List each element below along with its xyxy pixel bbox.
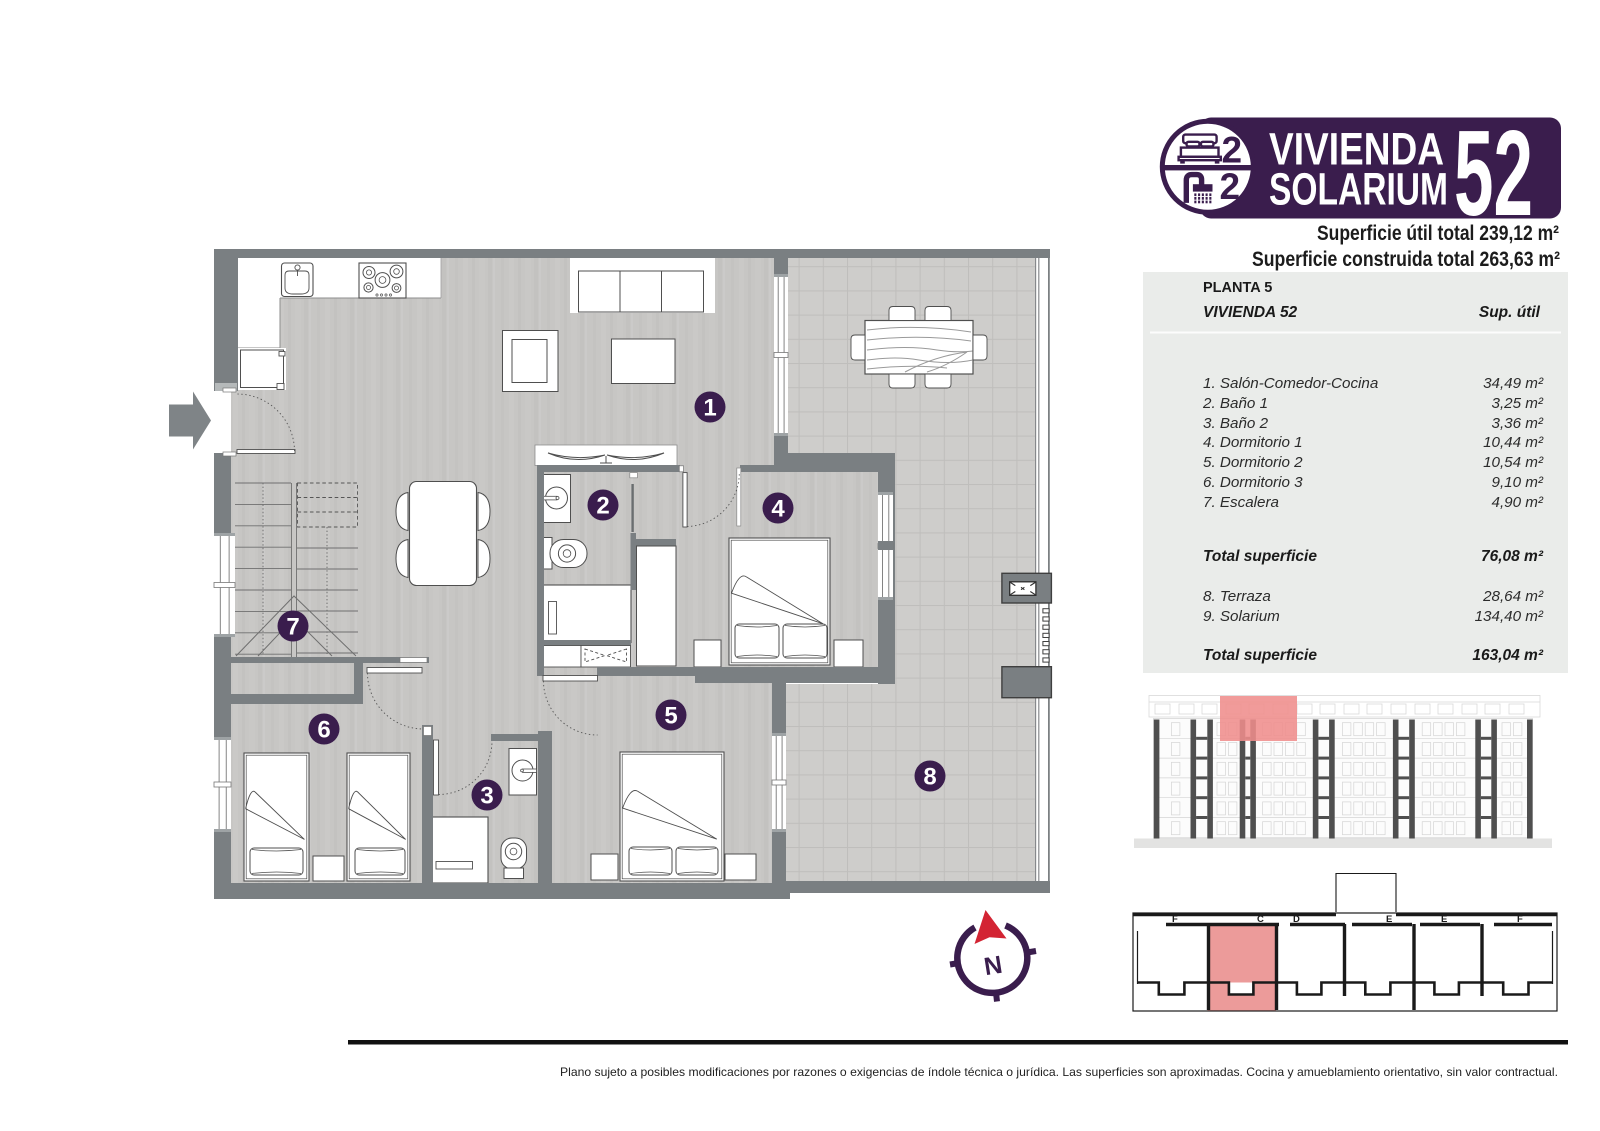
svg-text:9. Solarium: 9. Solarium [1203,608,1280,625]
svg-text:PLANTA 5: PLANTA 5 [1203,280,1272,296]
svg-text:Superficie útil total 239,12 m: Superficie útil total 239,12 m² [1317,222,1559,245]
svg-text:Plano sujeto a posibles modifi: Plano sujeto a posibles modificaciones p… [560,1065,1558,1079]
svg-text:3: 3 [480,783,493,810]
svg-text:SOLARIUM: SOLARIUM [1269,164,1448,215]
svg-text:3. Baño 2: 3. Baño 2 [1203,415,1269,432]
svg-text:Superficie construida total 26: Superficie construida total 263,63 m² [1252,248,1560,271]
svg-text:10,54 m²: 10,54 m² [1483,454,1544,471]
svg-text:4,90 m²: 4,90 m² [1492,494,1544,511]
svg-text:Total superficie: Total superficie [1203,647,1317,664]
svg-text:5: 5 [664,703,677,730]
svg-text:6: 6 [317,717,330,744]
svg-text:76,08 m²: 76,08 m² [1481,548,1544,565]
svg-text:4: 4 [771,496,785,523]
svg-text:N: N [982,951,1004,981]
svg-text:28,64 m²: 28,64 m² [1482,588,1544,605]
svg-text:3,36 m²: 3,36 m² [1492,415,1544,432]
svg-text:E: E [1441,914,1447,925]
svg-text:7: 7 [286,614,299,641]
svg-text:E: E [1386,914,1392,925]
svg-text:8. Terraza: 8. Terraza [1203,588,1271,605]
svg-text:VIVIENDA 52: VIVIENDA 52 [1203,304,1298,321]
svg-text:2. Baño 1: 2. Baño 1 [1202,395,1268,412]
svg-text:F: F [1517,914,1523,925]
svg-text:8: 8 [923,764,936,791]
svg-text:1. Salón-Comedor-Cocina: 1. Salón-Comedor-Cocina [1203,375,1378,392]
svg-text:Sup. útil: Sup. útil [1479,304,1541,321]
svg-text:C: C [1257,914,1264,925]
svg-text:163,04 m²: 163,04 m² [1472,647,1543,664]
svg-text:5. Dormitorio 2: 5. Dormitorio 2 [1203,454,1303,471]
svg-text:3,25 m²: 3,25 m² [1492,395,1544,412]
svg-text:9,10 m²: 9,10 m² [1492,474,1544,491]
svg-text:34,49 m²: 34,49 m² [1483,375,1544,392]
svg-text:134,40 m²: 134,40 m² [1475,608,1544,625]
svg-text:D: D [1293,914,1300,925]
svg-text:52: 52 [1454,105,1533,241]
svg-text:2: 2 [596,493,609,520]
svg-text:1: 1 [703,395,716,422]
svg-text:Total superficie: Total superficie [1203,548,1317,565]
svg-text:2: 2 [1220,166,1241,207]
svg-text:7. Escalera: 7. Escalera [1203,494,1279,511]
svg-text:4. Dormitorio 1: 4. Dormitorio 1 [1203,434,1303,451]
svg-text:F: F [1172,914,1178,925]
svg-text:10,44 m²: 10,44 m² [1483,434,1544,451]
svg-text:6. Dormitorio 3: 6. Dormitorio 3 [1203,474,1303,491]
svg-text:2: 2 [1222,130,1243,171]
